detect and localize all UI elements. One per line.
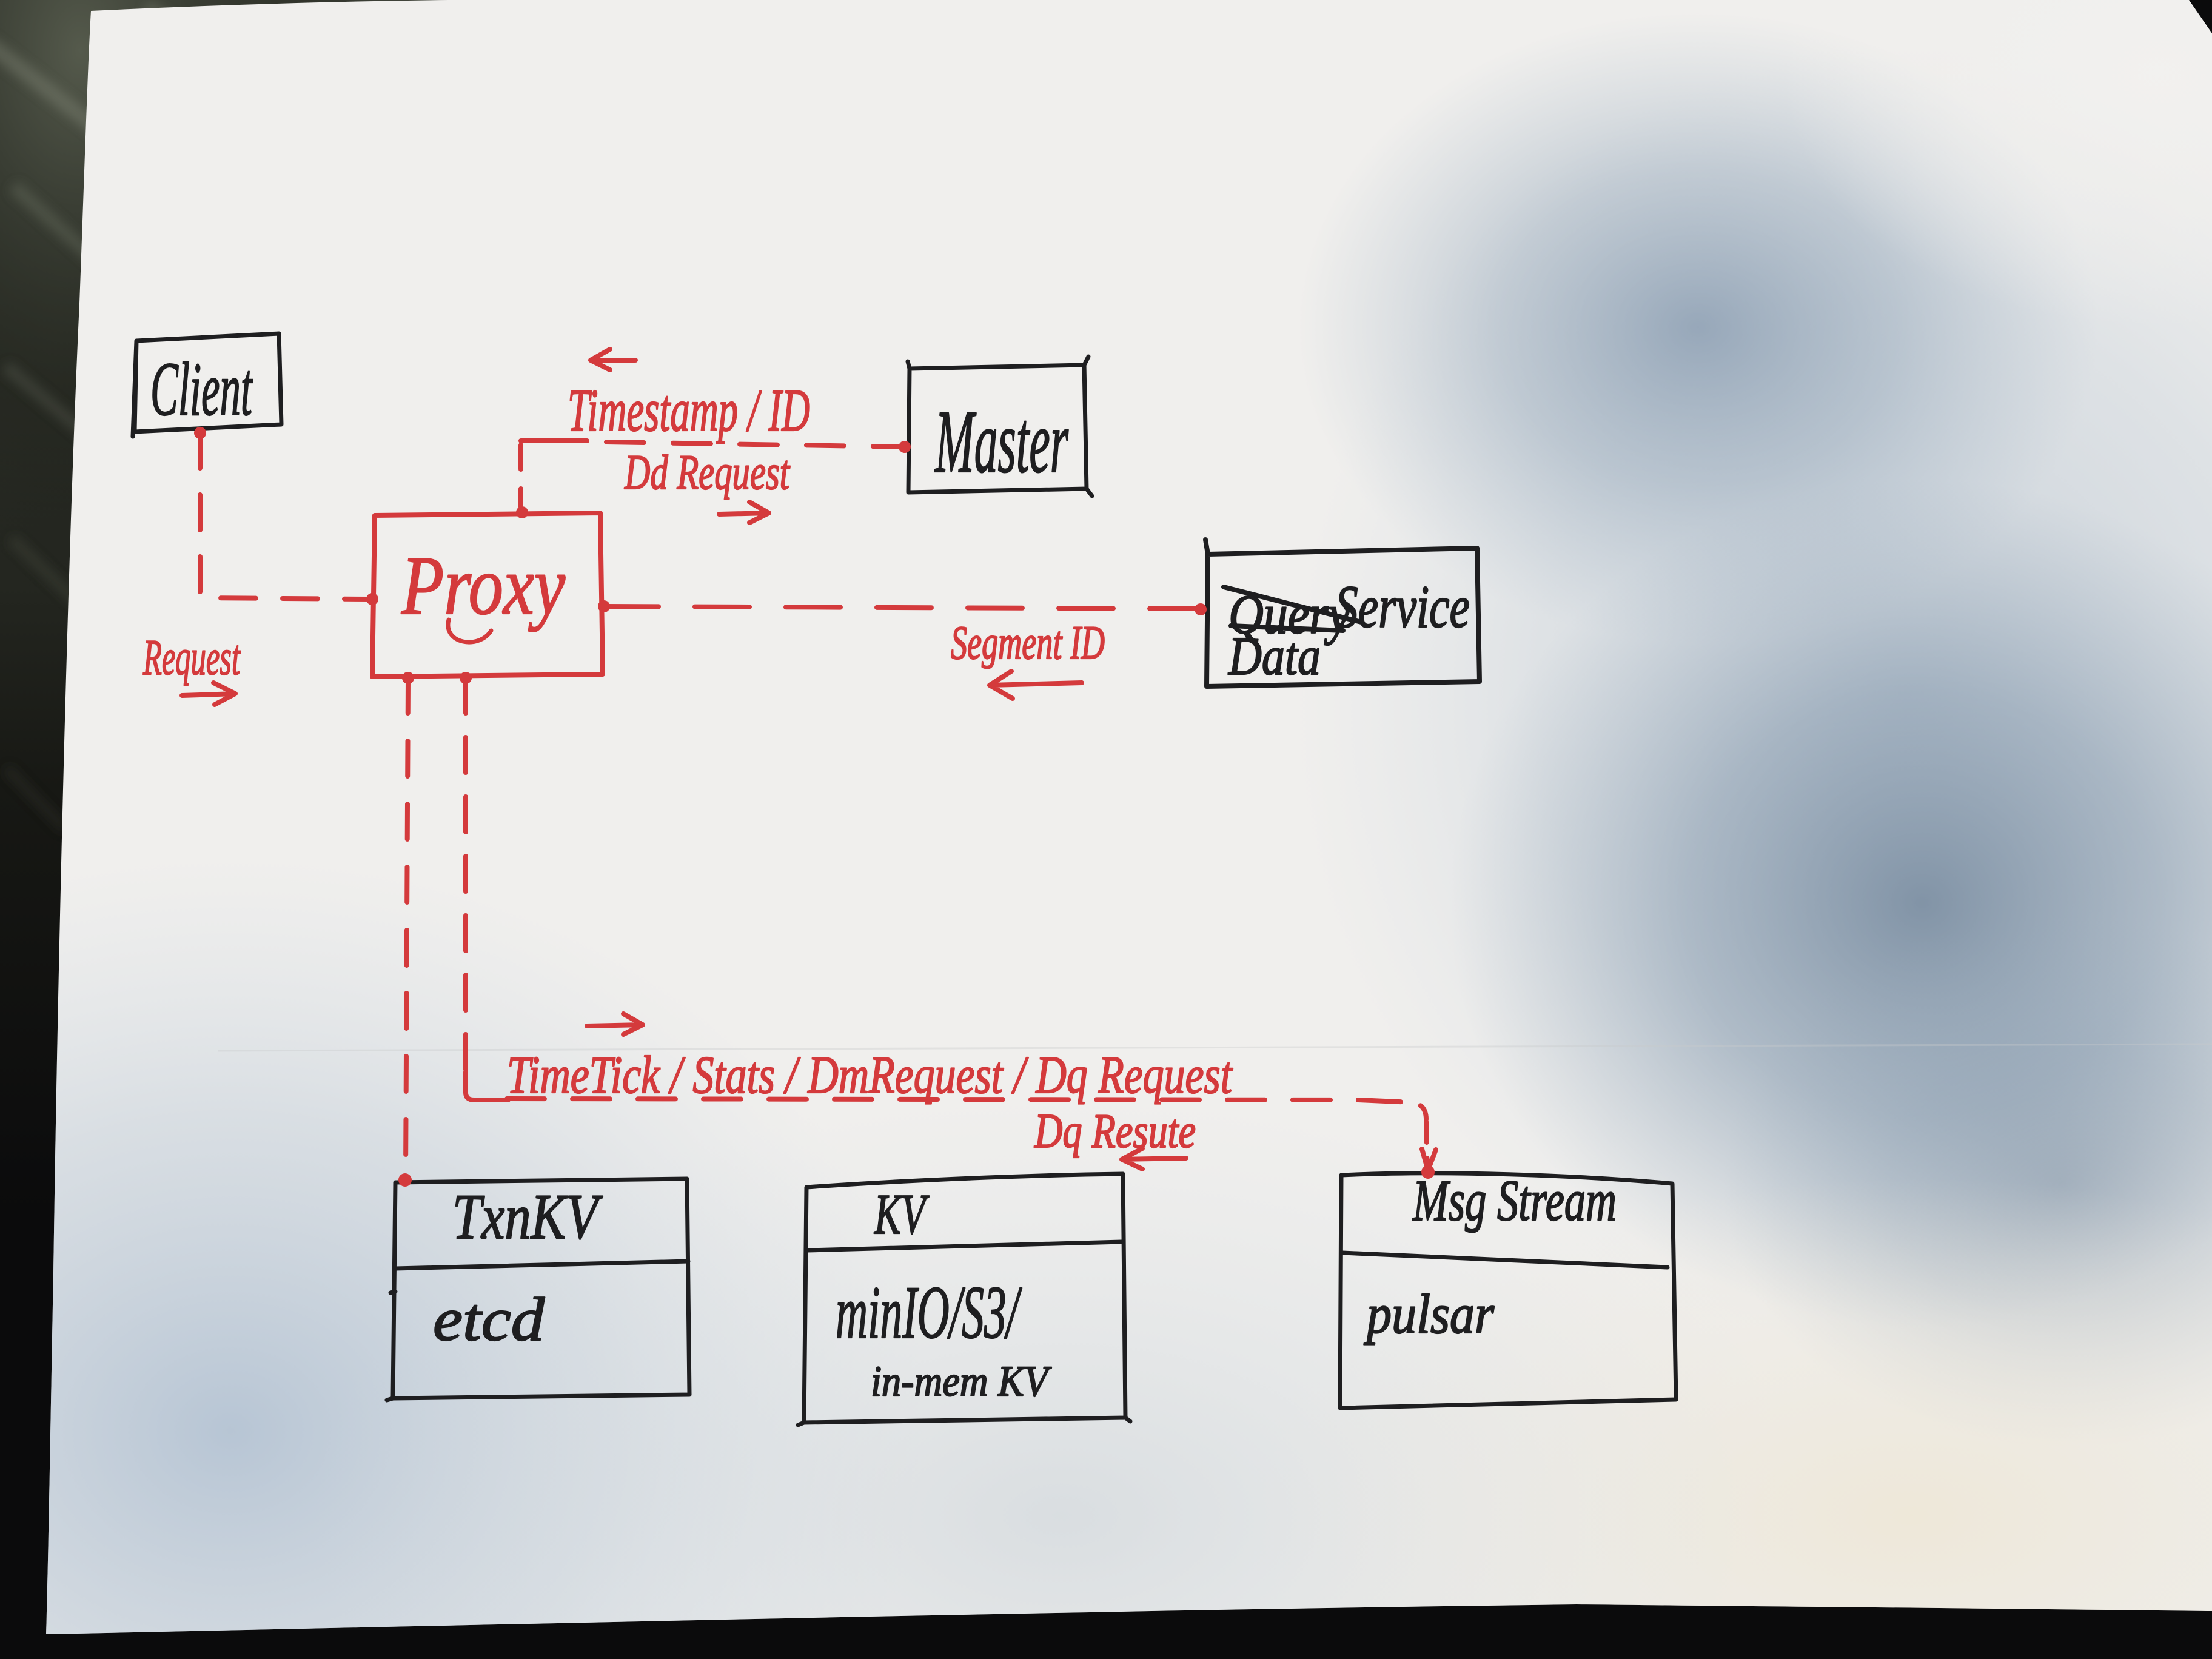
- svg-text:Dq Resute: Dq Resute: [1034, 1105, 1196, 1158]
- svg-text:Proxy: Proxy: [401, 539, 565, 632]
- svg-text:pulsar: pulsar: [1364, 1283, 1495, 1345]
- svg-text:Data: Data: [1227, 626, 1321, 686]
- svg-text:etcd: etcd: [433, 1285, 545, 1354]
- svg-text:TimeTick / Stats / DmRequest /: TimeTick / Stats / DmRequest / Dq Reques…: [507, 1046, 1233, 1105]
- svg-text:Dd Request: Dd Request: [624, 444, 790, 500]
- svg-text:Request: Request: [142, 629, 241, 686]
- svg-text:Msg Stream: Msg Stream: [1412, 1168, 1617, 1233]
- svg-text:in-mem KV: in-mem KV: [871, 1357, 1051, 1406]
- svg-text:Master: Master: [934, 392, 1069, 492]
- svg-text:Segment ID: Segment ID: [951, 616, 1105, 669]
- svg-text:Client: Client: [150, 347, 253, 432]
- svg-text:minIO/S3/: minIO/S3/: [836, 1271, 1022, 1354]
- svg-text:KV: KV: [874, 1183, 930, 1246]
- svg-text:TxnKV: TxnKV: [452, 1181, 603, 1252]
- svg-text:Timestamp / ID: Timestamp / ID: [568, 377, 810, 444]
- svg-text:Service: Service: [1335, 573, 1470, 640]
